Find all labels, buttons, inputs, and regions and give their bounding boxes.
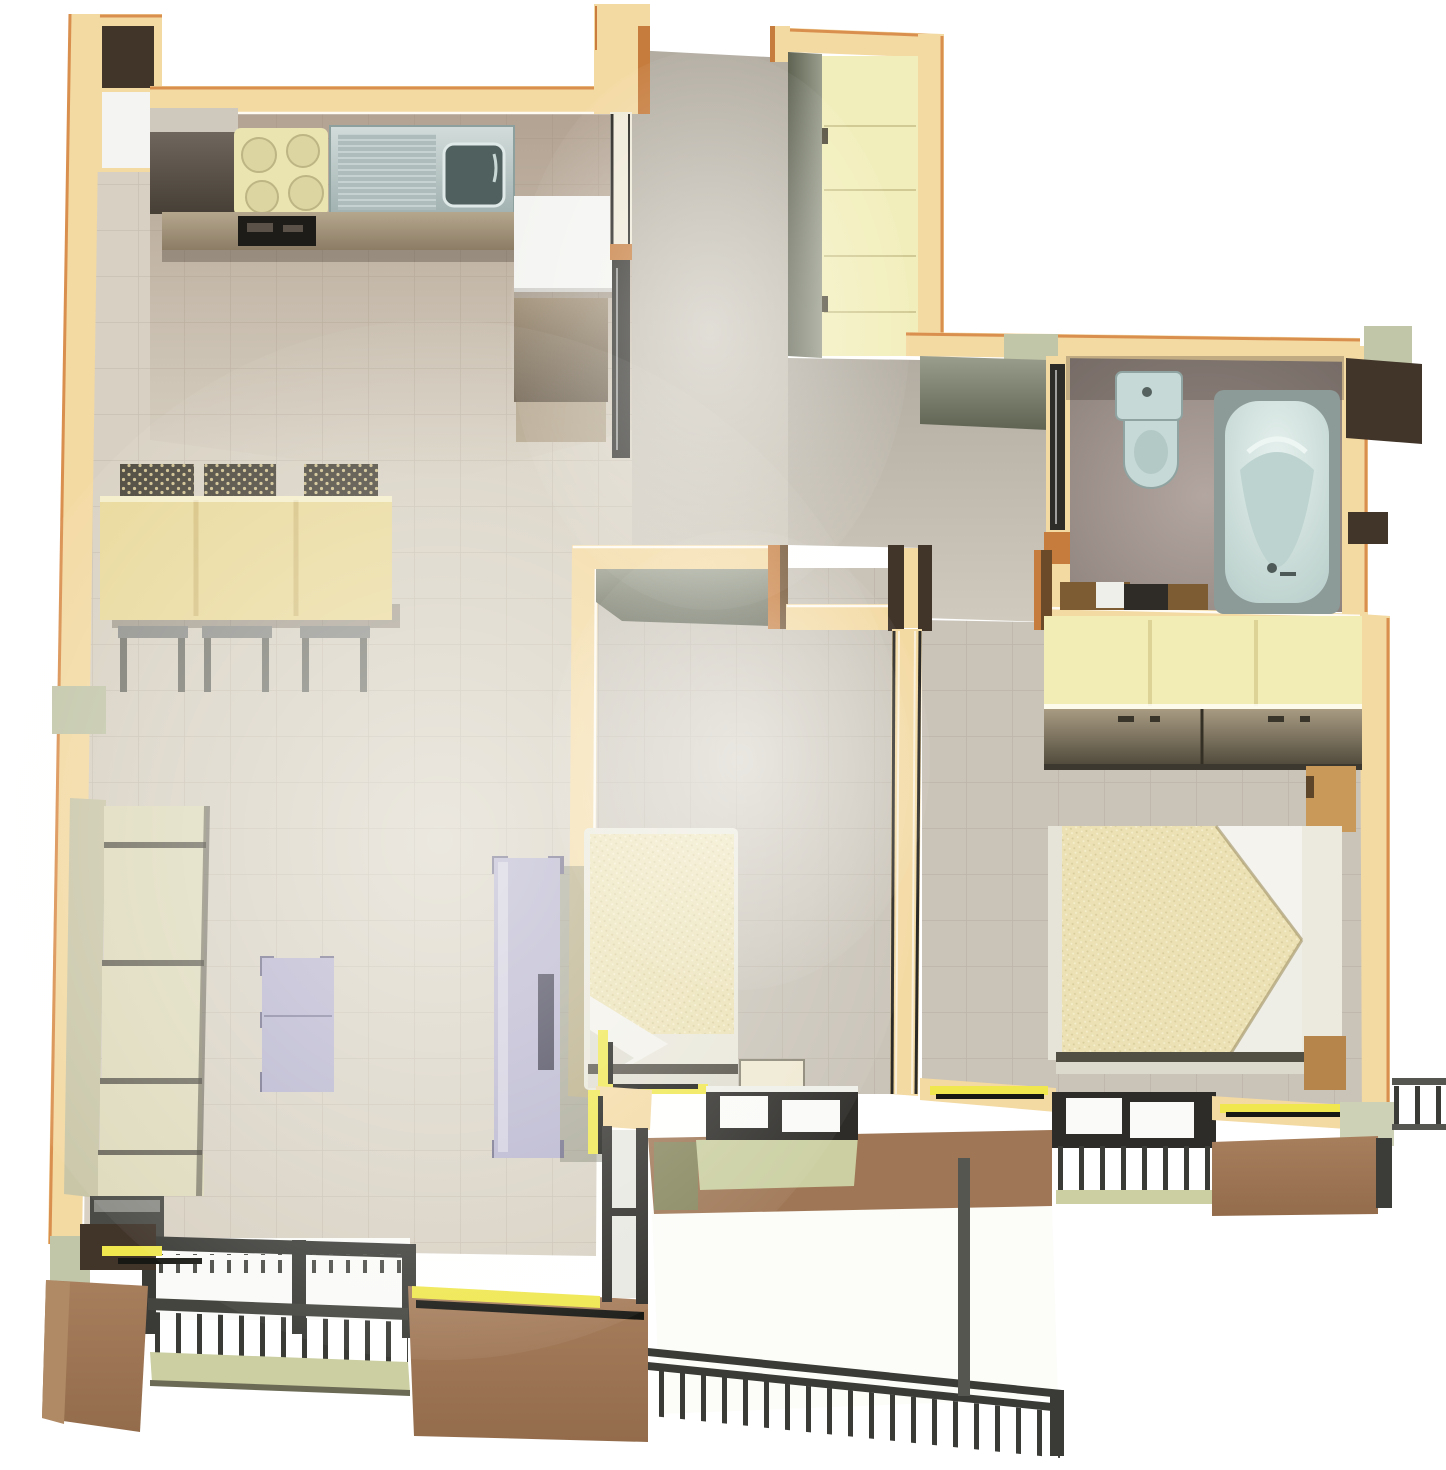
counter-front-band xyxy=(162,212,514,250)
skirting-yellow xyxy=(930,1086,1048,1095)
double-bed-mattress-edge xyxy=(1048,826,1064,1060)
vanity-dark-unit xyxy=(1124,584,1168,610)
wardrobe-handle xyxy=(1300,716,1310,722)
door-frame-edge xyxy=(770,26,775,62)
wardrobe-handle xyxy=(1118,716,1134,722)
kitchen-counter-left xyxy=(150,108,238,132)
wardrobe-handle xyxy=(1268,716,1284,722)
double-bed-footline xyxy=(1056,1052,1306,1062)
sink-drainboard xyxy=(338,134,436,210)
toilet-button xyxy=(1142,387,1152,397)
floorplan-render xyxy=(0,0,1446,1470)
facade-dark-post xyxy=(1376,1138,1392,1208)
hall-top-wall-inner-face xyxy=(920,356,1048,430)
bathtub xyxy=(1214,390,1340,614)
window-green-strip xyxy=(1056,1190,1212,1204)
balcony-divider-post xyxy=(958,1158,970,1396)
bathroom-door-leaf xyxy=(1050,364,1065,530)
light-overlay-hall xyxy=(510,50,910,610)
tub-handle xyxy=(1280,572,1296,576)
window-railing-bars xyxy=(1056,1146,1212,1194)
apartment-floorplan-svg xyxy=(0,0,1446,1470)
skirting-black xyxy=(1226,1112,1346,1117)
tub-drain xyxy=(1267,563,1277,573)
skirting-yellow xyxy=(1220,1104,1350,1113)
bathroom-vanity xyxy=(1060,582,1208,610)
wardrobe-top xyxy=(1044,616,1362,710)
master-bedroom xyxy=(1044,616,1362,1090)
divider-post-center xyxy=(904,548,918,628)
right-stub-railing xyxy=(1392,1078,1446,1130)
master-right-wall xyxy=(1360,614,1390,1142)
nightstand-handle xyxy=(1306,776,1314,798)
wardrobe-edge xyxy=(1044,704,1362,709)
exterior-block-darkbrown xyxy=(1346,358,1422,444)
oven-glint xyxy=(247,223,273,232)
vanity-sink xyxy=(1096,582,1124,608)
exterior-block-darkbrown-small xyxy=(1348,512,1388,544)
bed-footboard-wood xyxy=(1304,1036,1346,1090)
burner xyxy=(246,181,278,213)
divider-post-right xyxy=(918,545,932,631)
burner xyxy=(289,176,323,210)
balcony-rail-endpost xyxy=(1050,1390,1064,1456)
niche-fridge-white xyxy=(102,92,154,168)
facade-brown-right xyxy=(1212,1136,1378,1216)
burner xyxy=(287,135,319,167)
divider-post-left xyxy=(888,545,904,631)
niche-closet-dark xyxy=(102,26,154,88)
oven-glint xyxy=(283,225,303,232)
counter-shadow xyxy=(162,250,514,262)
wardrobe-handle xyxy=(1150,716,1160,722)
skirting-black xyxy=(936,1094,1044,1099)
burner xyxy=(242,138,276,172)
master-bedroom-window xyxy=(1052,1092,1216,1204)
light-overlay-bedroom xyxy=(550,530,930,990)
double-bed-foot-strip xyxy=(1056,1062,1306,1074)
toilet xyxy=(1116,372,1182,488)
nightstand xyxy=(1306,766,1356,832)
master-door-post-edge xyxy=(1034,550,1041,630)
closet-right-wall xyxy=(918,34,944,348)
toilet-bowl-inner xyxy=(1134,430,1168,474)
